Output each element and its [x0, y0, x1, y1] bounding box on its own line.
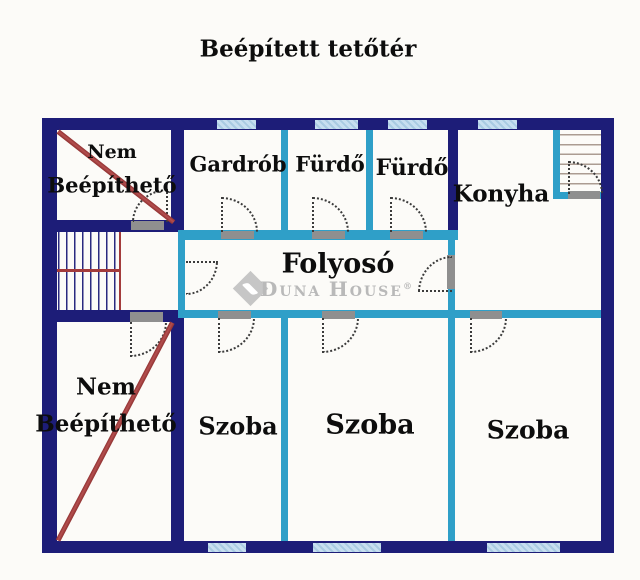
door-arc-furdo1: [312, 197, 349, 232]
window-top-3: [388, 120, 427, 129]
door-arc-szoba3: [470, 318, 507, 353]
wall-right: [601, 118, 614, 553]
room-label-nem-top-line2: Beépíthető: [47, 173, 176, 198]
partition-szoba1-szoba2: [281, 318, 288, 541]
window-top-2: [315, 120, 358, 129]
window-bottom-1: [208, 543, 246, 552]
room-label-furdo-1: Fürdő: [295, 152, 365, 177]
partition-furdo-furdo: [366, 130, 373, 230]
room-label-gardrob: Gardrób: [189, 152, 286, 177]
duna-house-logo-swoosh: [241, 283, 258, 295]
partition-stairbox-left: [553, 130, 560, 199]
watermark-brand: DUNA HOUSE®: [260, 277, 412, 301]
room-label-nem-bottom-line1: Nem: [76, 374, 136, 401]
room-label-konyha: Konyha: [453, 181, 550, 208]
partition-gardrob-furdo: [281, 130, 288, 230]
watermark-letter-d: D: [260, 277, 279, 301]
door-sill-furdo1: [312, 231, 345, 239]
window-bottom-3: [487, 543, 560, 552]
door-sill-furdo2: [390, 231, 423, 239]
door-sill-gardrob: [221, 231, 254, 239]
window-bottom-2: [313, 543, 381, 552]
watermark-ouse: OUSE: [350, 284, 403, 300]
door-arc-szoba1: [218, 318, 255, 353]
door-arc-gardrob: [221, 197, 258, 232]
room-label-furdo-2: Fürdő: [376, 155, 449, 181]
partition-corridor-left: [178, 240, 185, 310]
floorplan-canvas: Beépített tetőtér: [0, 0, 640, 580]
door-arc-szoba2: [322, 318, 359, 353]
watermark-letter-h: H: [329, 277, 350, 301]
room-label-szoba-2: Szoba: [325, 410, 414, 441]
window-top-4: [478, 120, 517, 129]
door-arc-konyha: [418, 256, 452, 292]
page-title: Beépített tetőtér: [200, 36, 417, 63]
watermark-una: UNA: [279, 284, 321, 300]
room-label-folyoso: Folyosó: [282, 249, 395, 280]
door-arc-corridor-left: [186, 261, 218, 295]
watermark-registered-mark: ®: [403, 282, 412, 292]
door-arc-furdo2: [390, 197, 427, 232]
wall-stairs-bottom: [57, 310, 184, 322]
door-sill-room7: [130, 312, 163, 322]
window-top-1: [217, 120, 256, 129]
room-label-szoba-3: Szoba: [487, 416, 570, 445]
room-label-szoba-1: Szoba: [198, 412, 277, 441]
room-label-nem-top-line1: Nem: [87, 141, 137, 163]
door-sill-room1: [131, 221, 164, 230]
room-label-nem-bottom-line2: Beépíthető: [35, 411, 176, 438]
staircase-left-guide-horizontal: [57, 269, 121, 272]
staircase-left-guide-vertical: [119, 232, 122, 310]
